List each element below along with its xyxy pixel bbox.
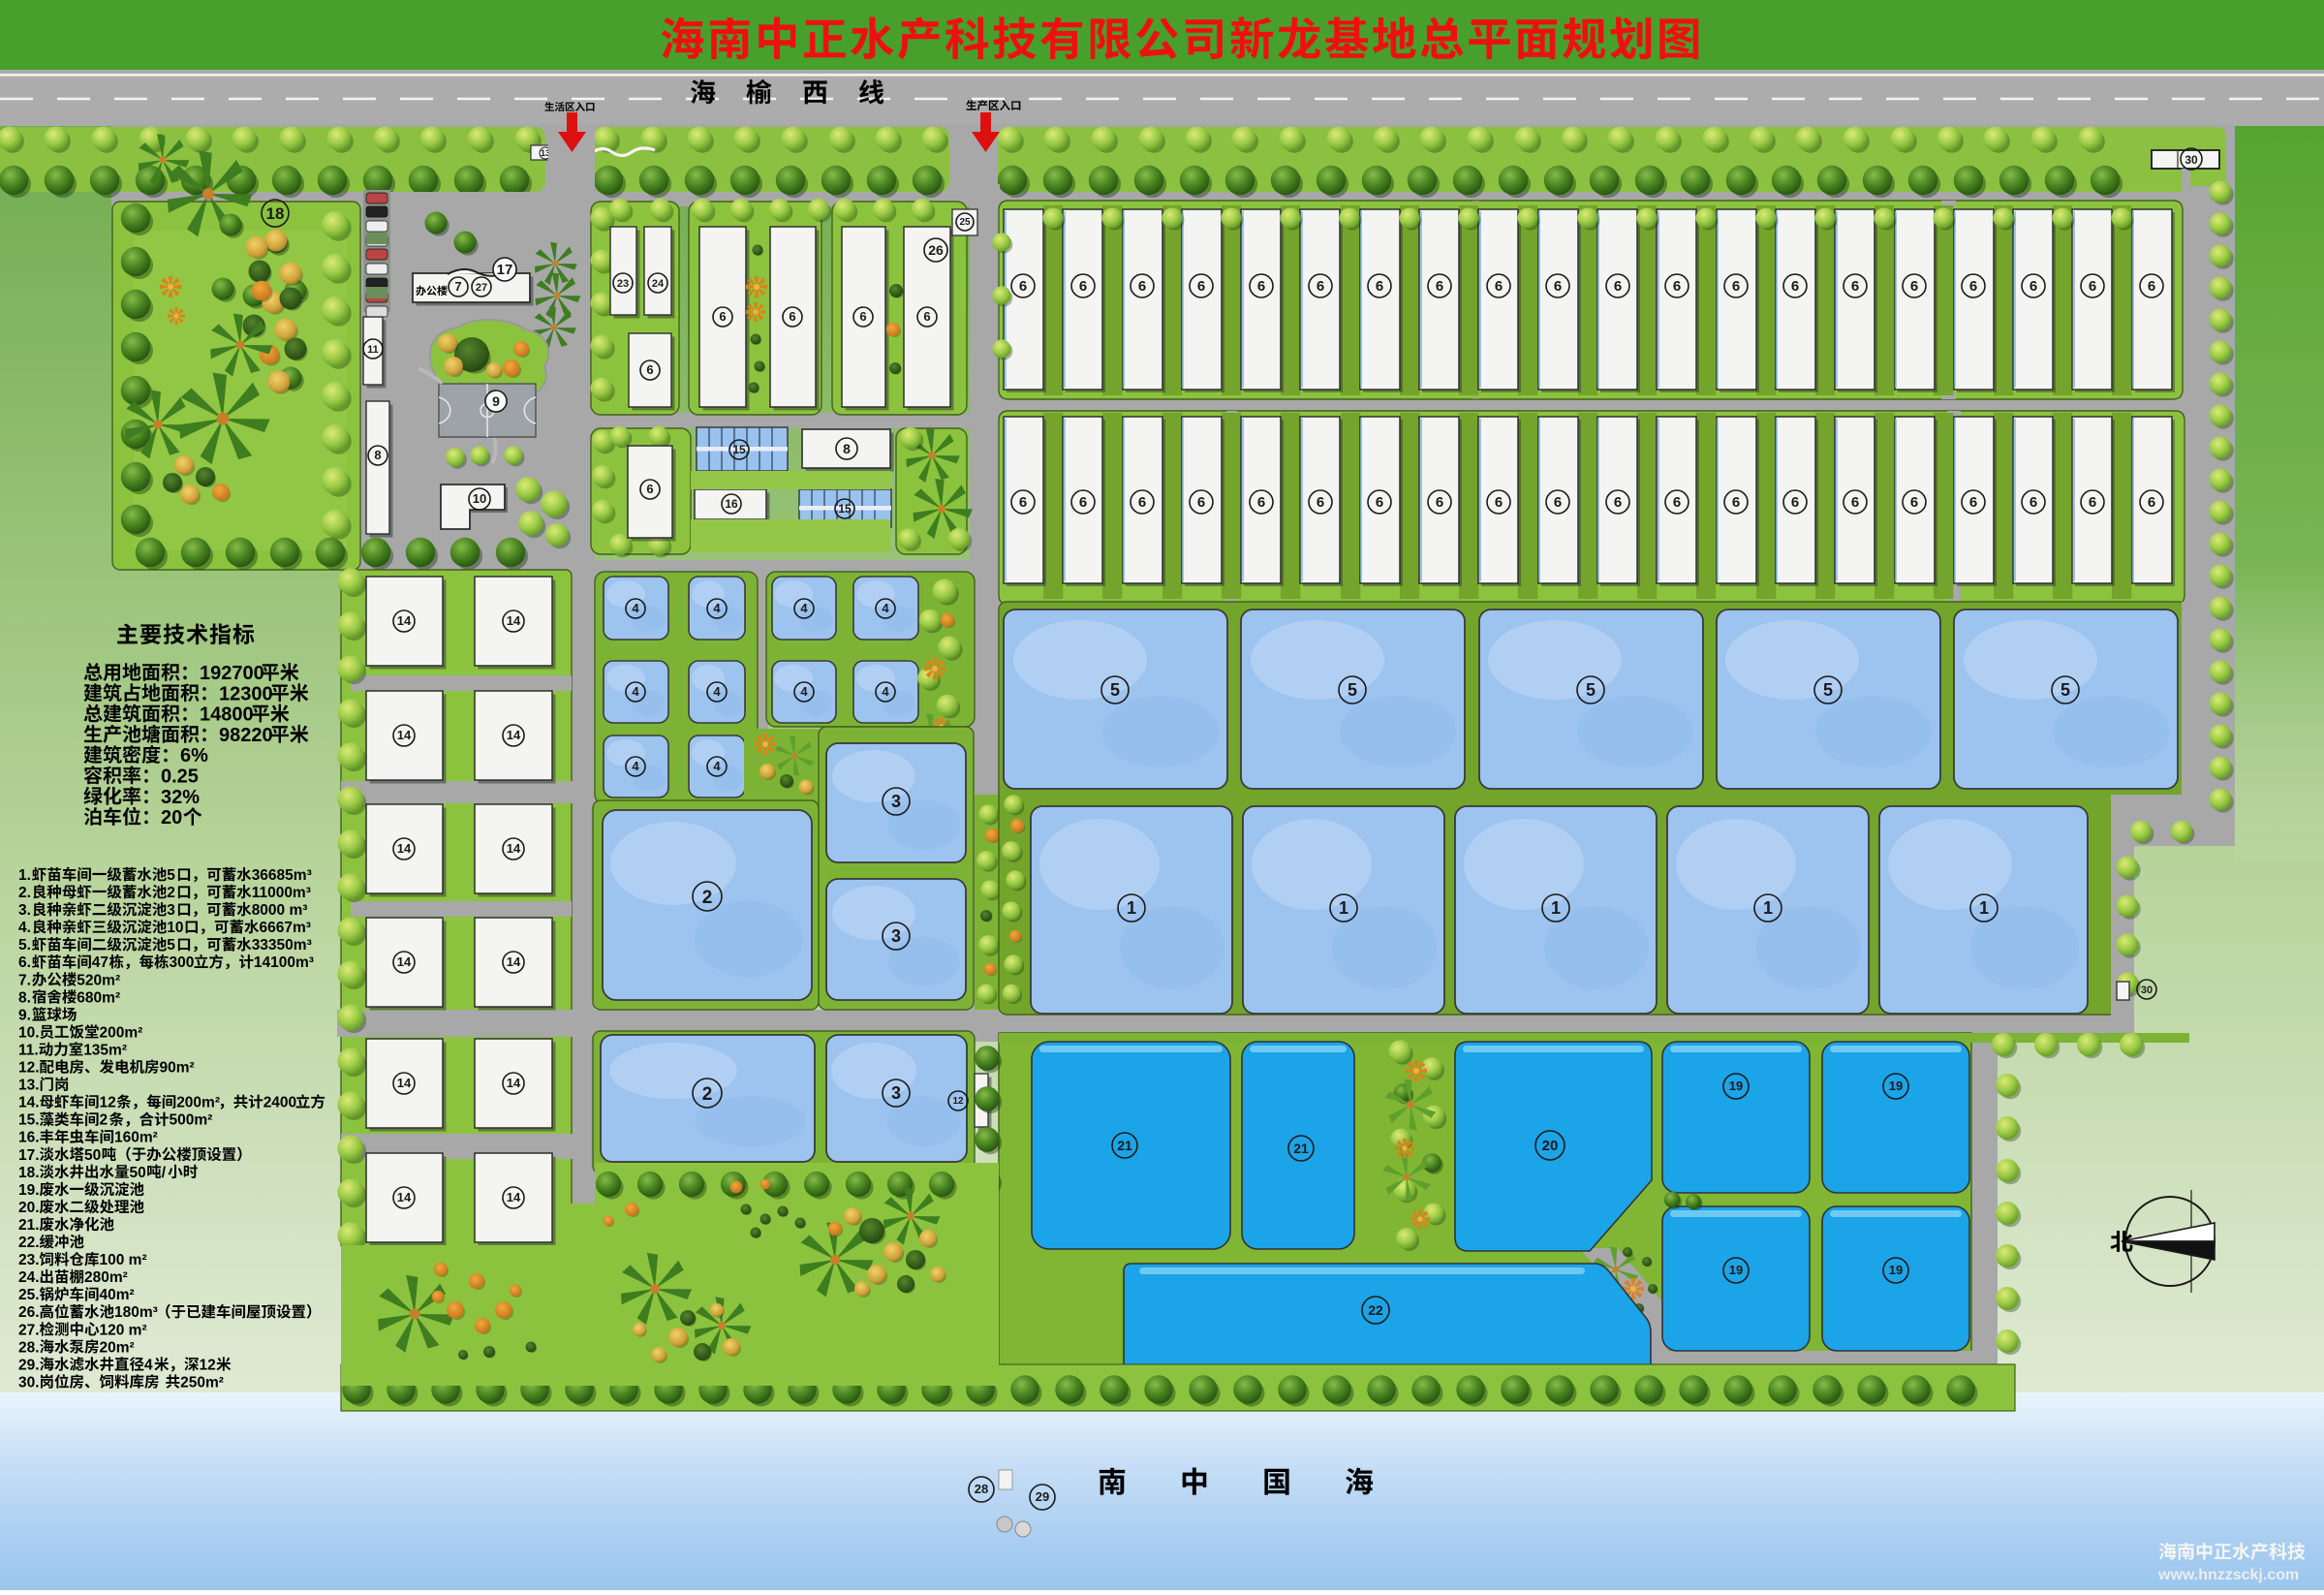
svg-text:6: 6 (1436, 278, 1443, 295)
svg-text:4: 4 (800, 684, 808, 699)
svg-text:6: 6 (1079, 278, 1087, 295)
svg-text:6: 6 (1732, 494, 1740, 511)
svg-text:5: 5 (1348, 680, 1357, 700)
svg-text:135m²: 135m² (83, 1043, 127, 1059)
svg-text:21.: 21. (18, 1217, 40, 1234)
svg-text:13.: 13. (18, 1078, 40, 1094)
svg-text:3.: 3. (18, 902, 31, 919)
svg-text:6: 6 (1969, 278, 1977, 295)
svg-text:6: 6 (1317, 278, 1324, 295)
svg-text:30.: 30. (18, 1374, 40, 1391)
svg-text:19: 19 (1729, 1263, 1743, 1277)
svg-text:300: 300 (170, 954, 195, 971)
svg-text:12300: 12300 (219, 683, 273, 704)
svg-text:20.: 20. (18, 1200, 40, 1216)
svg-text:19: 19 (1889, 1263, 1903, 1277)
svg-text:4: 4 (713, 601, 721, 615)
svg-text:18: 18 (266, 204, 285, 223)
svg-text:20: 20 (161, 807, 182, 829)
svg-text:26: 26 (928, 242, 944, 258)
svg-text:6: 6 (1791, 278, 1799, 295)
svg-text:680m²: 680m² (77, 989, 120, 1006)
svg-text:20m²: 20m² (100, 1339, 135, 1356)
svg-text:6: 6 (1851, 278, 1859, 295)
svg-text:12: 12 (100, 1095, 116, 1111)
svg-text:6: 6 (646, 482, 653, 496)
svg-text:25: 25 (959, 217, 971, 228)
svg-text:2: 2 (702, 1084, 713, 1105)
svg-text:6: 6 (1910, 278, 1918, 295)
svg-text:6: 6 (1614, 494, 1622, 511)
svg-text:6: 6 (923, 309, 930, 324)
svg-text:6: 6 (1851, 494, 1859, 511)
svg-text:27.: 27. (18, 1322, 40, 1338)
svg-text:14: 14 (507, 841, 521, 856)
svg-text:4: 4 (713, 759, 721, 773)
svg-text:280m²: 280m² (84, 1269, 128, 1286)
svg-text:4: 4 (713, 684, 721, 699)
svg-text:6: 6 (1138, 278, 1146, 295)
svg-text:14800: 14800 (200, 704, 254, 726)
svg-text:1: 1 (1763, 898, 1773, 918)
svg-text:6: 6 (1257, 278, 1265, 295)
svg-text:192700: 192700 (200, 663, 264, 684)
svg-text:6: 6 (1019, 494, 1027, 511)
svg-text:10: 10 (473, 491, 486, 506)
svg-text:24.: 24. (18, 1269, 40, 1286)
svg-text:9.: 9. (18, 1007, 31, 1023)
svg-text:3: 3 (167, 902, 175, 919)
svg-text:6: 6 (1554, 494, 1562, 511)
svg-text:6: 6 (1554, 278, 1562, 295)
svg-text:www.hnzzsckj.com: www.hnzzsckj.com (2157, 1567, 2299, 1583)
svg-text:11.: 11. (18, 1043, 39, 1059)
svg-text:15: 15 (732, 443, 746, 456)
svg-text:1.: 1. (18, 867, 31, 884)
svg-text:6%: 6% (180, 745, 208, 766)
svg-text:23: 23 (617, 278, 629, 290)
svg-text:6: 6 (1138, 494, 1146, 511)
svg-text:27: 27 (476, 282, 487, 294)
svg-text:14: 14 (397, 1190, 412, 1204)
svg-text:8: 8 (843, 441, 851, 456)
svg-text:12: 12 (200, 1357, 216, 1373)
svg-text:6: 6 (2030, 278, 2037, 295)
svg-text:100 m²: 100 m² (100, 1252, 147, 1268)
svg-text:6: 6 (2089, 494, 2096, 511)
svg-text:19.: 19. (18, 1182, 40, 1199)
svg-text:6.: 6. (18, 954, 31, 971)
svg-text:180m³: 180m³ (114, 1304, 158, 1321)
svg-text:25.: 25. (18, 1287, 40, 1303)
svg-text:2400: 2400 (263, 1095, 296, 1111)
svg-text:24: 24 (652, 278, 665, 290)
svg-text:28.: 28. (18, 1339, 40, 1356)
svg-text:15.: 15. (18, 1112, 40, 1129)
svg-text:26.: 26. (18, 1304, 40, 1321)
svg-text:40m²: 40m² (100, 1287, 135, 1303)
svg-text:15: 15 (838, 502, 852, 516)
svg-text:1: 1 (1979, 898, 1989, 918)
svg-text:6: 6 (719, 309, 726, 324)
svg-text:2: 2 (702, 888, 713, 908)
svg-text:6: 6 (1376, 494, 1383, 511)
svg-text:6: 6 (2089, 278, 2096, 295)
svg-text:16.: 16. (18, 1130, 40, 1146)
svg-text:30: 30 (2141, 985, 2153, 996)
svg-text:12.: 12. (18, 1060, 40, 1077)
svg-text:32%: 32% (161, 787, 200, 808)
svg-text:6: 6 (1257, 494, 1265, 511)
svg-text:20: 20 (1542, 1138, 1559, 1154)
svg-text:21: 21 (1293, 1141, 1309, 1156)
svg-text:6: 6 (859, 309, 866, 324)
svg-text:14: 14 (397, 954, 412, 969)
svg-text:9: 9 (492, 393, 500, 409)
svg-text:19: 19 (1889, 1079, 1903, 1093)
svg-text:30: 30 (2185, 153, 2198, 167)
svg-text:4: 4 (882, 601, 889, 615)
svg-text:14: 14 (507, 613, 521, 628)
svg-text:14: 14 (397, 841, 412, 856)
svg-text:1: 1 (1551, 898, 1561, 918)
svg-text:6: 6 (646, 362, 653, 377)
svg-text:5: 5 (1110, 680, 1120, 700)
svg-text:23.: 23. (18, 1252, 40, 1268)
svg-text:3: 3 (891, 1083, 901, 1103)
svg-text:14: 14 (507, 954, 521, 969)
svg-text:6: 6 (2030, 494, 2037, 511)
svg-text:36685m³: 36685m³ (252, 867, 312, 884)
svg-text:0.25: 0.25 (161, 766, 199, 788)
svg-text:4: 4 (632, 759, 639, 773)
svg-text:2: 2 (167, 885, 175, 901)
svg-text:11: 11 (367, 344, 379, 356)
svg-text:160m²: 160m² (114, 1130, 158, 1146)
svg-text:14: 14 (397, 728, 412, 742)
svg-text:4: 4 (632, 684, 639, 699)
svg-text:6: 6 (1495, 278, 1503, 295)
svg-text:14100m³: 14100m³ (254, 954, 314, 971)
svg-text:/: / (162, 1165, 167, 1181)
svg-text:4.: 4. (18, 920, 31, 936)
svg-text:17.: 17. (18, 1147, 40, 1164)
svg-text:6: 6 (1969, 494, 1977, 511)
svg-text:5: 5 (2061, 680, 2070, 700)
svg-text:18.: 18. (18, 1165, 40, 1181)
svg-text:3: 3 (891, 926, 901, 946)
svg-text:200m²: 200m² (176, 1095, 220, 1111)
svg-text:29.: 29. (18, 1357, 40, 1373)
svg-text:6: 6 (1732, 278, 1740, 295)
svg-text:6: 6 (789, 309, 795, 324)
svg-text:6: 6 (1197, 494, 1205, 511)
svg-text:250m²: 250m² (180, 1374, 224, 1391)
svg-text:10: 10 (167, 920, 183, 936)
svg-text:5: 5 (167, 867, 175, 884)
svg-text:8000 m³: 8000 m³ (252, 902, 308, 919)
svg-text:90m²: 90m² (160, 1060, 195, 1077)
svg-text:120 m²: 120 m² (100, 1322, 147, 1338)
svg-text:3: 3 (891, 792, 901, 811)
svg-text:14: 14 (507, 728, 521, 742)
svg-text:4: 4 (882, 684, 889, 699)
svg-text:1: 1 (1339, 898, 1348, 918)
svg-text:14: 14 (397, 613, 412, 628)
svg-text:7.: 7. (18, 972, 31, 988)
svg-text:6: 6 (1317, 494, 1324, 511)
svg-text:200m²: 200m² (100, 1024, 143, 1041)
svg-text:14: 14 (397, 1076, 412, 1090)
svg-text:14: 14 (507, 1076, 521, 1090)
svg-text:6667m³: 6667m³ (260, 920, 311, 936)
svg-text:29: 29 (1036, 1489, 1049, 1504)
svg-text:520m²: 520m² (77, 972, 120, 988)
svg-text:12: 12 (952, 1096, 964, 1107)
svg-text:6: 6 (1079, 494, 1087, 511)
svg-text:2.: 2. (18, 885, 31, 901)
svg-text:7: 7 (454, 279, 461, 294)
svg-text:5: 5 (167, 937, 175, 954)
svg-text:6: 6 (1673, 494, 1681, 511)
svg-text:47: 47 (92, 954, 108, 971)
svg-text:14: 14 (507, 1190, 521, 1204)
svg-text:6: 6 (2148, 278, 2155, 295)
svg-text:50: 50 (130, 1165, 146, 1181)
svg-text:2: 2 (100, 1112, 108, 1129)
svg-text:4: 4 (800, 601, 808, 615)
svg-text:6: 6 (1673, 278, 1681, 295)
svg-text:22.: 22. (18, 1235, 40, 1251)
svg-text:16: 16 (725, 497, 738, 511)
svg-text:17: 17 (497, 262, 513, 278)
svg-text:500m²: 500m² (170, 1112, 213, 1129)
svg-text:19: 19 (1729, 1079, 1743, 1093)
svg-text:28: 28 (975, 1482, 988, 1496)
svg-text:11000m³: 11000m³ (252, 885, 311, 901)
svg-text:22: 22 (1368, 1302, 1383, 1318)
svg-text:8: 8 (374, 448, 381, 462)
svg-text:6: 6 (1495, 494, 1503, 511)
svg-text:1: 1 (1127, 898, 1136, 918)
svg-text:98220: 98220 (219, 725, 273, 746)
svg-text:50: 50 (84, 1147, 101, 1164)
svg-text:6: 6 (1376, 278, 1383, 295)
svg-text:8.: 8. (18, 989, 31, 1006)
svg-text:6: 6 (1436, 494, 1443, 511)
svg-text:6: 6 (1791, 494, 1799, 511)
svg-text:6: 6 (1614, 278, 1622, 295)
svg-text:33350m³: 33350m³ (252, 937, 312, 954)
svg-text:5.: 5. (18, 937, 31, 954)
svg-text:6: 6 (1019, 278, 1027, 295)
svg-text:10.: 10. (18, 1024, 40, 1041)
svg-text:6: 6 (1197, 278, 1205, 295)
svg-text:6: 6 (2148, 494, 2155, 511)
svg-text:4: 4 (632, 601, 639, 615)
svg-text:14.: 14. (18, 1095, 40, 1111)
svg-text:5: 5 (1823, 680, 1833, 700)
svg-text:6: 6 (1910, 494, 1918, 511)
svg-text:5: 5 (1586, 680, 1596, 700)
svg-text:4: 4 (144, 1357, 153, 1373)
svg-text:21: 21 (1117, 1138, 1132, 1153)
